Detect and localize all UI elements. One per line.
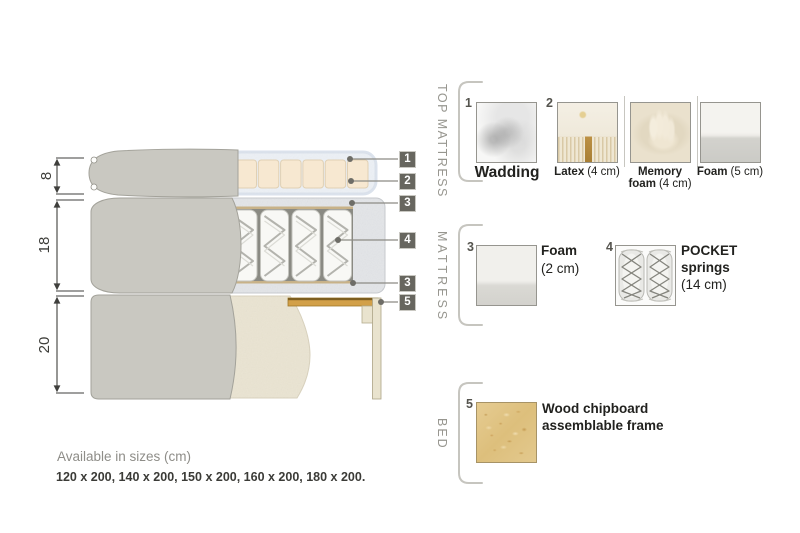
pocket-springs-label-line1: POCKET [681, 243, 737, 258]
callout-tag-4: 4 [399, 232, 416, 249]
dimension-20cm: 20 [37, 330, 53, 360]
callout-tag-3-top: 3 [399, 195, 416, 212]
swatch-divider [624, 96, 625, 167]
top-mattress-cutaway [89, 149, 376, 197]
swatch-number-3: 3 [460, 240, 474, 254]
top-mattress-cover [89, 149, 238, 197]
dimension-lines [54, 158, 84, 393]
foam-2cm-label-name: Foam [541, 243, 577, 258]
swatch-number-5: 5 [459, 397, 473, 411]
pocket-springs-illustration [616, 246, 675, 305]
bed-cover [91, 295, 236, 399]
wadding-swatch [476, 102, 537, 163]
section-label-mattress: MATTRESS [435, 231, 449, 322]
memory-foam-swatch [630, 102, 691, 163]
swatch-number-1: 1 [458, 96, 472, 110]
foam-5cm-label-name: Foam [697, 166, 728, 178]
swatch-number-4: 4 [599, 240, 613, 254]
latex-label-name: Latex [554, 166, 584, 178]
mattress-cutaway [91, 198, 385, 293]
section-label-top-mattress: TOP MATTRESS [435, 84, 449, 198]
dimension-8cm: 8 [39, 161, 55, 191]
latex-swatch [557, 102, 618, 163]
foam-5cm-label: Foam(5 cm) [680, 167, 780, 179]
dimension-18cm: 18 [37, 230, 53, 260]
mattress-cover [91, 198, 241, 293]
memory-foam-label-size: (4 cm) [659, 178, 692, 190]
swatch-divider [697, 96, 698, 167]
wood-chipboard-label-line2: assemblable frame [542, 418, 664, 433]
callout-tag-3-bottom: 3 [399, 275, 416, 292]
foam-5cm-swatch [700, 102, 761, 163]
pocket-springs-label-size: (14 cm) [681, 277, 727, 292]
callout-tag-1: 1 [399, 151, 416, 168]
pocket-springs-swatch [615, 245, 676, 306]
foam-2cm-swatch [476, 245, 537, 306]
cover-eyelet [91, 157, 97, 163]
bed-layers-infographic: 8 18 20 1 2 3 4 3 5 TOP MATTRESS 1 Waddi… [0, 0, 800, 533]
available-sizes-title: Available in sizes (cm) [57, 449, 191, 464]
wood-chipboard-label-line1: Wood chipboard [542, 401, 648, 416]
pocket-springs-label: POCKET springs (14 cm) [681, 242, 771, 293]
wood-chipboard-swatch [476, 402, 537, 463]
swatch-number-2: 2 [539, 96, 553, 110]
callout-tag-2: 2 [399, 173, 416, 190]
section-label-bed: BED [435, 418, 449, 450]
memory-foam-label-line2: foam [628, 178, 655, 190]
wood-chipboard-label: Wood chipboard assemblable frame [542, 400, 712, 434]
cover-eyelet [91, 184, 97, 190]
available-sizes-list: 120 x 200, 140 x 200, 150 x 200, 160 x 2… [56, 470, 365, 484]
pocket-springs-label-line2: springs [681, 260, 730, 275]
callout-tag-5: 5 [399, 294, 416, 311]
foam-2cm-label-size: (2 cm) [541, 261, 579, 276]
memory-foam-label-line1: Memory [638, 166, 682, 178]
foam-5cm-label-size: (5 cm) [731, 166, 764, 178]
frame-side-rail [373, 298, 382, 399]
bed-base-cutaway [91, 295, 381, 399]
